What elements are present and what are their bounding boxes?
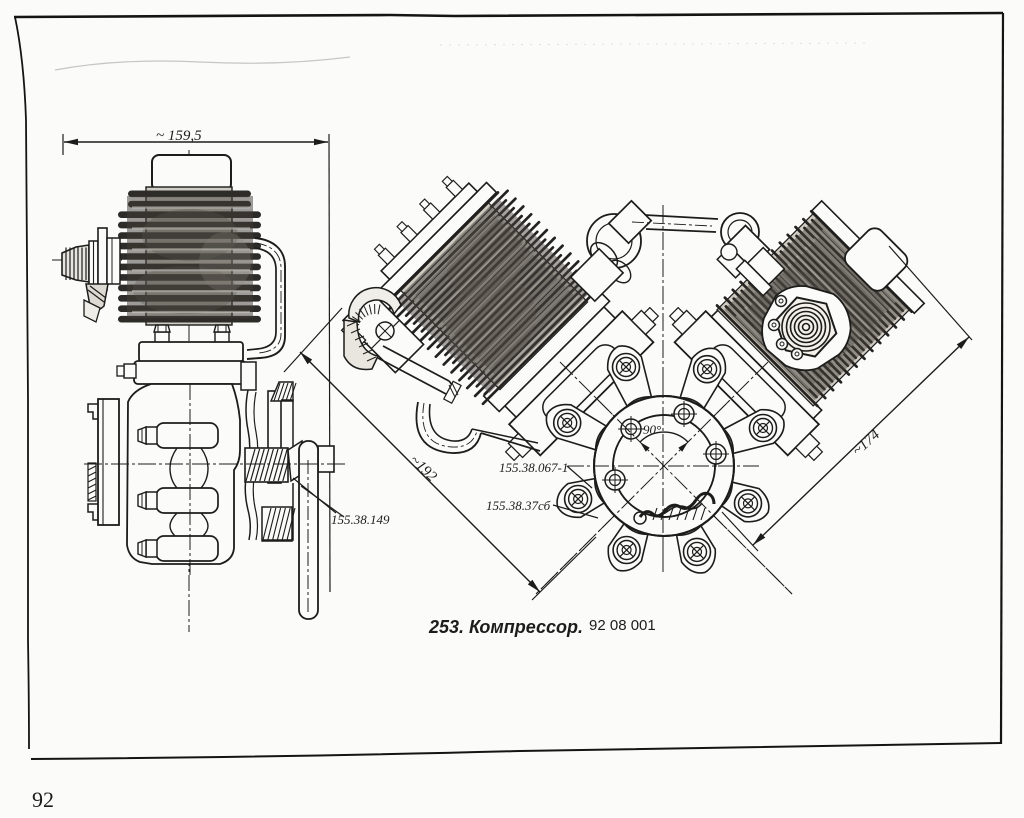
svg-text:155.38.37сб: 155.38.37сб (486, 498, 551, 513)
svg-text:92 08 001: 92 08 001 (589, 617, 656, 634)
svg-text:90°: 90° (643, 422, 661, 437)
svg-text:253. Компрессор.: 253. Компрессор. (428, 617, 583, 637)
svg-text:155.38.067-1: 155.38.067-1 (499, 460, 568, 475)
svg-text:92: 92 (32, 787, 54, 812)
